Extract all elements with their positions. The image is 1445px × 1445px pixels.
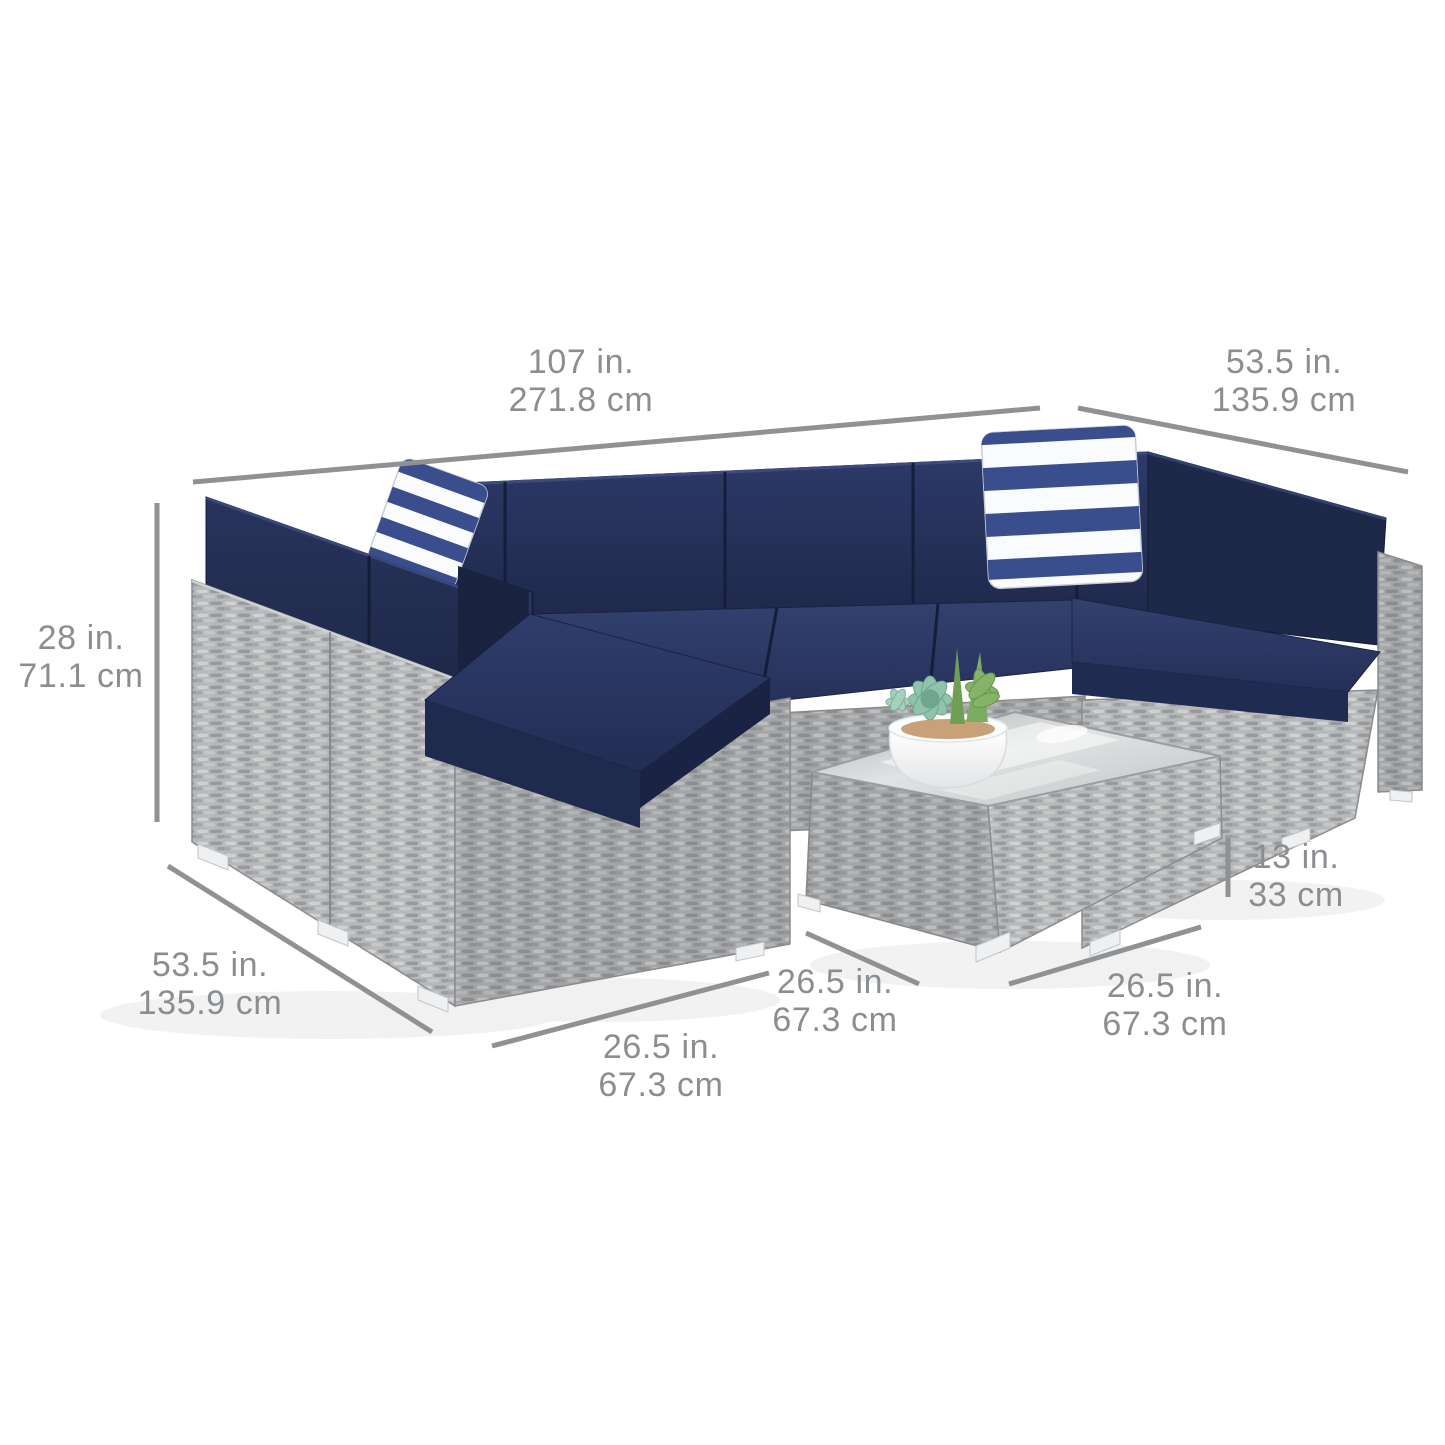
dimension-inches: 28 in. — [18, 619, 143, 657]
sofa-foot — [1390, 790, 1412, 802]
right-back-cushion — [1148, 452, 1386, 645]
dimension-label-table-width: 26.5 in. 67.3 cm — [1102, 967, 1227, 1043]
sectional-sofa — [192, 425, 1422, 1012]
dimension-label-table-height: 13 in. 33 cm — [1248, 838, 1344, 914]
dimension-cm: 71.1 cm — [18, 657, 143, 695]
dimension-cm: 67.3 cm — [598, 1066, 723, 1104]
dimension-cm: 67.3 cm — [1102, 1005, 1227, 1043]
dimension-inches: 53.5 in. — [138, 946, 283, 984]
dimension-inches: 107 in. — [509, 343, 654, 381]
right-arm-wicker — [1378, 552, 1422, 802]
striped-pillow-right — [981, 425, 1143, 589]
dimension-label-sofa-depth-right: 53.5 in. 135.9 cm — [1212, 343, 1357, 419]
dimension-inches: 26.5 in. — [1102, 967, 1227, 1005]
dimension-cm: 135.9 cm — [1212, 381, 1357, 419]
dimension-inches: 26.5 in. — [598, 1028, 723, 1066]
dimension-inches: 26.5 in. — [772, 963, 897, 1001]
dimension-label-table-depth: 26.5 in. 67.3 cm — [772, 963, 897, 1039]
product-dimension-diagram: 107 in. 271.8 cm 53.5 in. 135.9 cm 28 in… — [0, 0, 1445, 1445]
dimension-inches: 53.5 in. — [1212, 343, 1357, 381]
dimension-label-sofa-depth-left: 53.5 in. 135.9 cm — [138, 946, 283, 1022]
dimension-label-sofa-width: 107 in. 271.8 cm — [509, 343, 654, 419]
dimension-inches: 13 in. — [1248, 838, 1344, 876]
dimension-label-sofa-height: 28 in. 71.1 cm — [18, 619, 143, 695]
dimension-cm: 33 cm — [1248, 876, 1344, 914]
dimension-cm: 67.3 cm — [772, 1001, 897, 1039]
dimension-label-seat-width: 26.5 in. 67.3 cm — [598, 1028, 723, 1104]
dimension-cm: 271.8 cm — [509, 381, 654, 419]
dimension-cm: 135.9 cm — [138, 984, 283, 1022]
furniture-illustration — [0, 0, 1445, 1445]
